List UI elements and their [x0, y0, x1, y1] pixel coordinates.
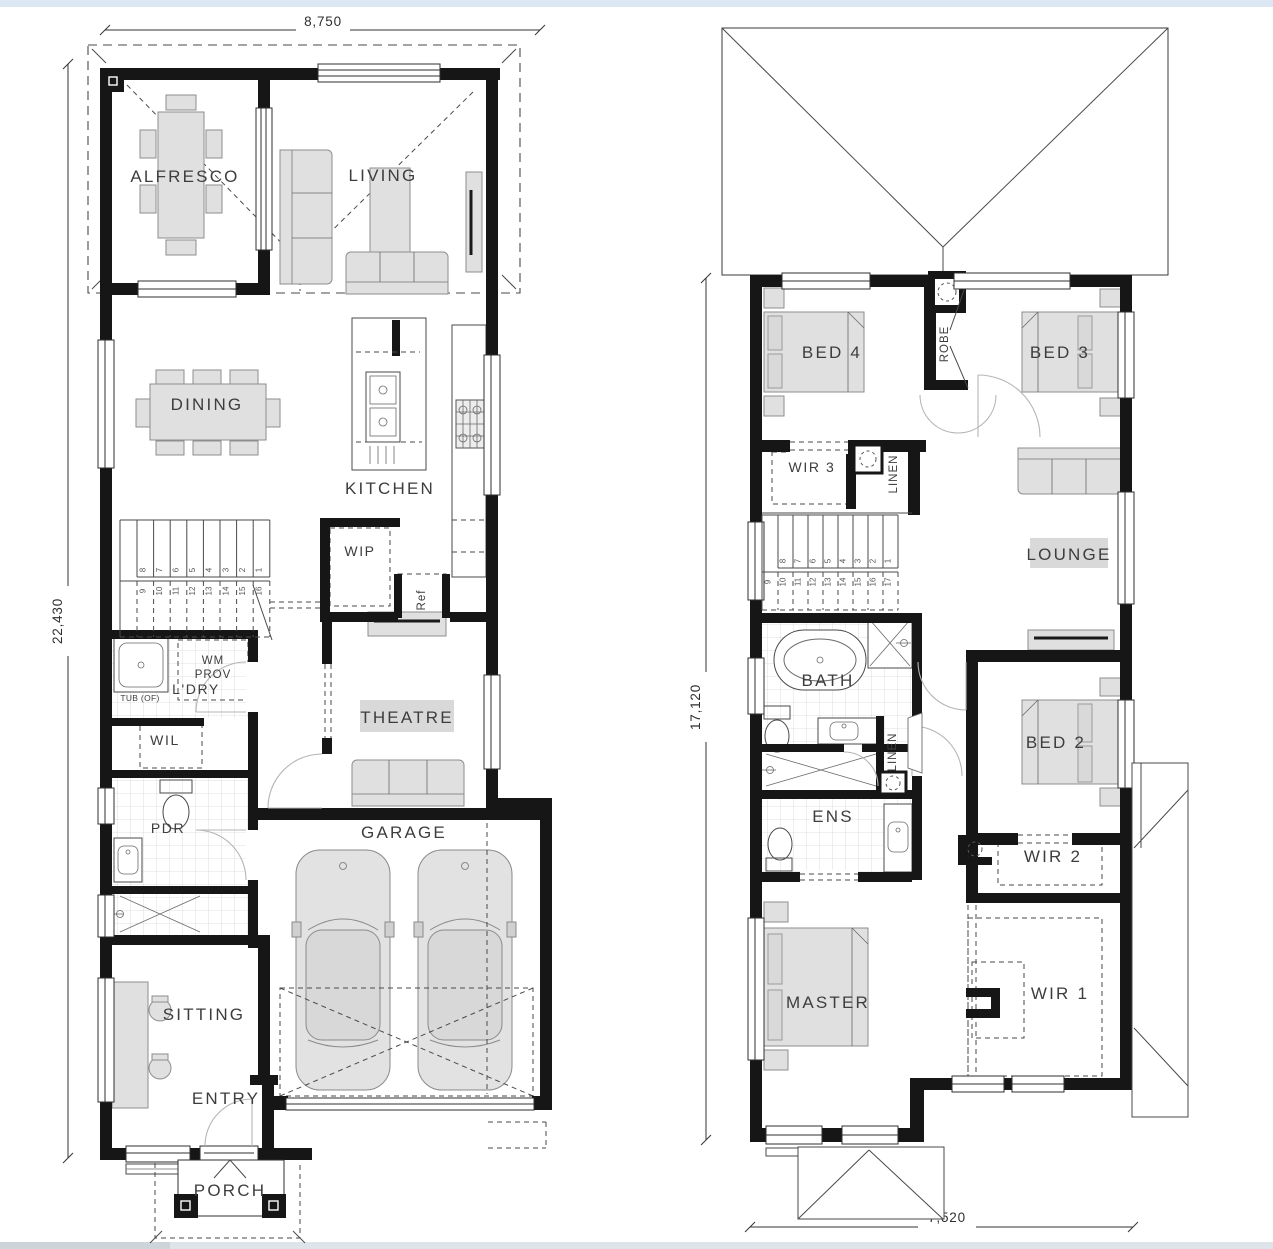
svg-text:3: 3	[854, 558, 863, 563]
porch-roof-below	[798, 1147, 944, 1219]
label-alfresco: ALFRESCO	[130, 167, 239, 186]
svg-text:3: 3	[221, 567, 230, 572]
ground-floor-plan: 8,750 22,430	[50, 14, 552, 1243]
label-linen-lower: LINEN	[887, 733, 899, 772]
ground-dimension-left: 22,430	[50, 59, 73, 1163]
laundry-tub	[114, 638, 168, 692]
bath-shower	[868, 618, 912, 668]
svg-text:8: 8	[138, 567, 147, 572]
first-floor-plan: 17,120 7,520	[688, 28, 1188, 1232]
svg-text:1: 1	[255, 567, 264, 572]
first-stairs: 8765432191011121314151617	[762, 515, 898, 610]
label-dining: DINING	[171, 395, 244, 414]
label-bed3: BED 3	[1030, 343, 1090, 362]
svg-text:15: 15	[854, 577, 863, 586]
svg-text:2: 2	[238, 567, 247, 572]
svg-text:11: 11	[172, 586, 181, 595]
floor-plan-page: 8,750 22,430	[0, 0, 1273, 1249]
master-bed-furniture	[764, 902, 868, 1070]
label-entry: ENTRY	[192, 1089, 260, 1108]
pdr-basin	[114, 838, 142, 882]
ground-dim-top-label: 8,750	[304, 14, 342, 29]
svg-text:9: 9	[764, 579, 773, 584]
side-roof-strip	[1132, 763, 1188, 1117]
ground-dimension-top: 8,750	[100, 14, 545, 35]
label-living: LIVING	[349, 166, 418, 185]
svg-text:4: 4	[839, 558, 848, 563]
bottom-strip	[0, 1242, 1273, 1249]
svg-text:7: 7	[794, 558, 803, 563]
svg-text:7: 7	[155, 567, 164, 572]
car-left	[292, 850, 394, 1090]
svg-text:2: 2	[869, 558, 878, 563]
label-ref: Ref	[416, 590, 428, 611]
first-dimension-left: 17,120	[688, 273, 711, 1145]
label-wir2: WIR 2	[1024, 847, 1082, 866]
svg-text:8: 8	[779, 558, 788, 563]
label-ens: ENS	[812, 807, 854, 826]
label-bed4: BED 4	[802, 343, 862, 362]
living-tv-unit	[466, 172, 482, 272]
label-wil: WIL	[150, 732, 180, 748]
lounge-tv	[1028, 630, 1114, 650]
svg-text:6: 6	[172, 567, 181, 572]
svg-text:6: 6	[809, 558, 818, 563]
bath-vanity	[818, 718, 882, 744]
label-tub: TUB (OF)	[120, 693, 159, 703]
svg-text:16: 16	[869, 577, 878, 586]
mid-shower	[762, 754, 876, 786]
label-lounge: LOUNGE	[1027, 545, 1112, 564]
bottom-strip-left	[0, 1242, 170, 1249]
label-wip: WIP	[344, 543, 375, 559]
wip-shelves	[330, 528, 390, 606]
svg-text:1: 1	[884, 558, 893, 563]
lounge-sofa	[1018, 448, 1122, 494]
label-wm: WM	[202, 655, 224, 667]
label-sitting: SITTING	[163, 1005, 245, 1024]
label-bed2: BED 2	[1026, 733, 1086, 752]
living-sofa-left	[280, 150, 332, 284]
svg-text:4: 4	[205, 567, 214, 572]
kitchen-island	[352, 318, 426, 470]
ground-stairs: 87654321910111213141516	[120, 520, 270, 637]
top-strip	[0, 0, 1273, 7]
label-kitchen: KITCHEN	[345, 479, 435, 498]
svg-text:14: 14	[839, 577, 848, 586]
label-wir3: WIR 3	[789, 459, 836, 475]
main-roof-outline	[722, 28, 1168, 275]
theatre-sofa	[352, 760, 464, 806]
label-robe: ROBE	[939, 326, 951, 363]
svg-text:11: 11	[794, 577, 803, 586]
label-theatre: THEATRE	[360, 708, 453, 727]
svg-text:10: 10	[155, 586, 164, 595]
svg-text:14: 14	[221, 586, 230, 595]
svg-text:13: 13	[205, 586, 214, 595]
svg-text:12: 12	[188, 586, 197, 595]
svg-text:13: 13	[824, 577, 833, 586]
svg-text:9: 9	[138, 588, 147, 593]
svg-text:12: 12	[809, 577, 818, 586]
living-sofa-bottom	[346, 252, 448, 294]
shower-tiles	[112, 894, 248, 935]
label-porch: PORCH	[194, 1181, 266, 1200]
label-prov: PROV	[195, 669, 232, 681]
porch-structure	[150, 1160, 305, 1243]
ens-vanity	[884, 804, 912, 872]
label-linen-upper: LINEN	[888, 455, 900, 494]
alfresco-corner-pier	[104, 72, 124, 92]
label-garage: GARAGE	[361, 823, 447, 842]
kitchen-bench	[452, 325, 486, 577]
car-right	[414, 850, 516, 1090]
svg-text:17: 17	[884, 577, 893, 586]
label-pdr: PDR	[151, 820, 185, 836]
ground-dim-left-label: 22,430	[50, 598, 65, 644]
label-laundry: L'DRY	[172, 681, 220, 697]
label-master: MASTER	[786, 993, 870, 1012]
floor-plan-drawing: 8,750 22,430	[0, 0, 1273, 1249]
linen-door-leaf	[908, 713, 922, 773]
svg-text:5: 5	[824, 558, 833, 563]
label-wir1: WIR 1	[1031, 984, 1089, 1003]
first-dim-left-label: 17,120	[688, 684, 703, 730]
label-bath: BATH	[802, 671, 855, 690]
svg-text:5: 5	[188, 567, 197, 572]
svg-text:15: 15	[238, 586, 247, 595]
svg-text:10: 10	[779, 577, 788, 586]
